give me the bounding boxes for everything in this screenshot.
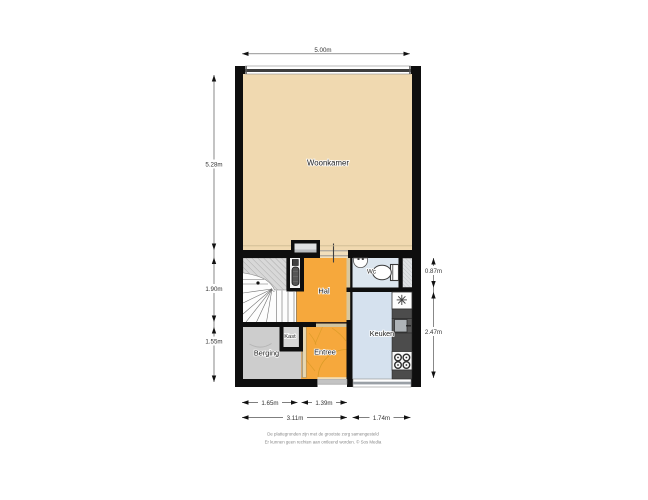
svg-text:1.39m: 1.39m bbox=[315, 400, 332, 407]
svg-text:Hal: Hal bbox=[318, 287, 330, 296]
svg-text:Er kunnen geen rechten aan ont: Er kunnen geen rechten aan ontleend word… bbox=[265, 440, 382, 445]
svg-text:Kast: Kast bbox=[284, 334, 296, 340]
svg-text:1.90m: 1.90m bbox=[205, 286, 222, 293]
svg-text:De plattegronden zijn met de g: De plattegronden zijn met de grootste zo… bbox=[267, 432, 379, 437]
svg-text:2.47m: 2.47m bbox=[425, 329, 442, 336]
svg-text:Keuken: Keuken bbox=[370, 329, 394, 338]
svg-text:Entree: Entree bbox=[314, 347, 336, 356]
svg-text:3.11m: 3.11m bbox=[287, 415, 304, 422]
svg-text:1.65m: 1.65m bbox=[261, 400, 278, 407]
svg-text:Berging: Berging bbox=[254, 349, 279, 358]
svg-text:5.00m: 5.00m bbox=[314, 47, 331, 54]
svg-text:0.87m: 0.87m bbox=[425, 268, 442, 275]
svg-text:Wc: Wc bbox=[367, 269, 376, 276]
svg-text:1.55m: 1.55m bbox=[205, 339, 222, 346]
svg-text:1.74m: 1.74m bbox=[373, 415, 390, 422]
svg-text:Woonkamer: Woonkamer bbox=[307, 159, 349, 168]
svg-text:5.28m: 5.28m bbox=[205, 162, 222, 169]
